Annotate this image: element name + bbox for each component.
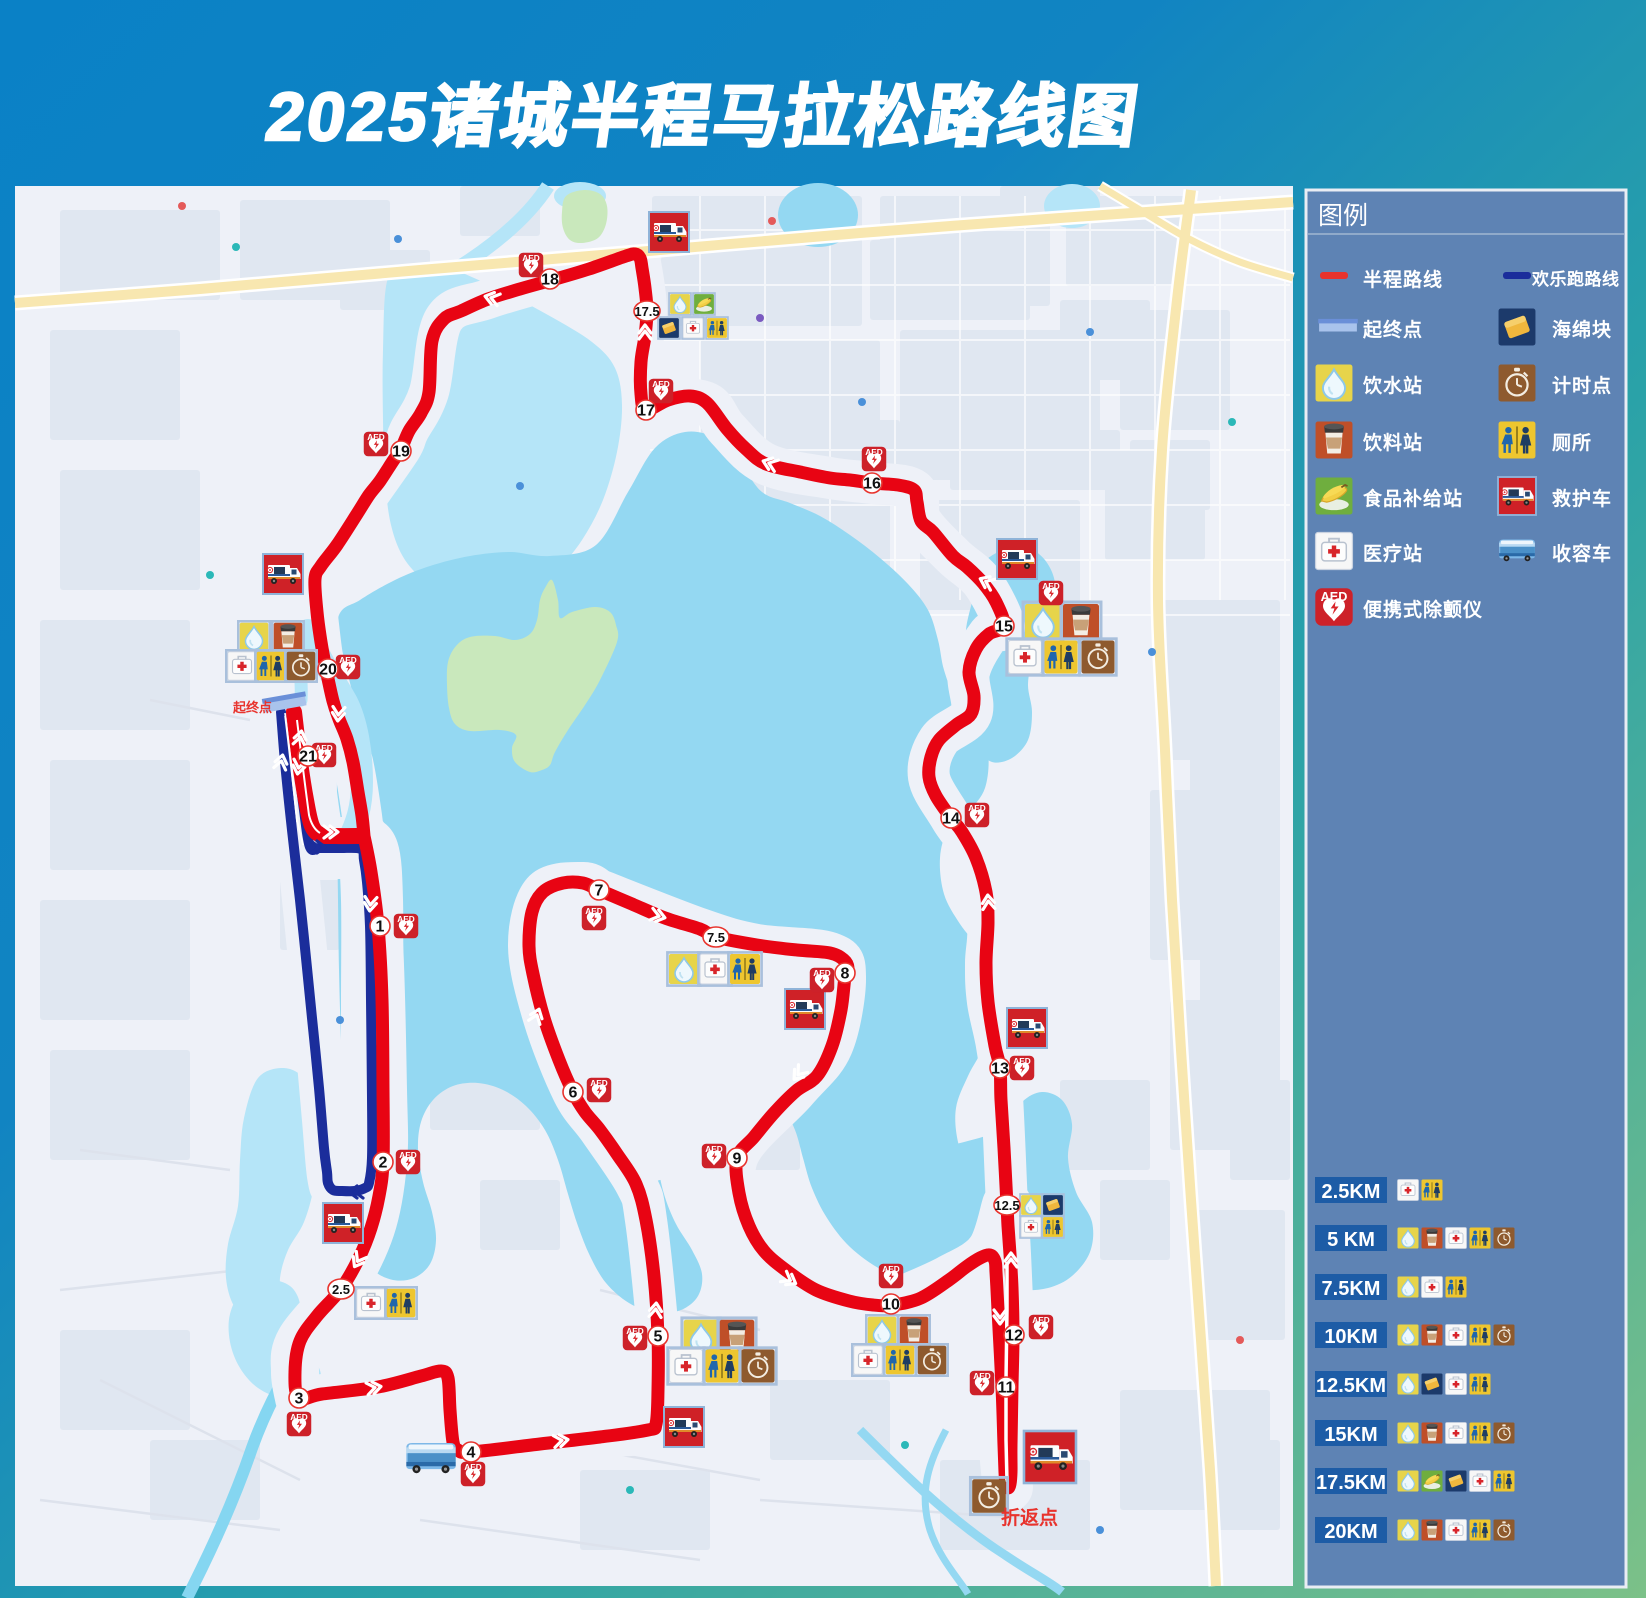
svg-text:计时点: 计时点 [1552, 375, 1612, 397]
svg-text:食品补给站: 食品补给站 [1363, 487, 1463, 510]
svg-text:21: 21 [299, 749, 317, 766]
svg-text:收容车: 收容车 [1552, 542, 1612, 565]
svg-text:18: 18 [541, 272, 559, 289]
svg-text:17.5: 17.5 [634, 304, 659, 319]
svg-text:20: 20 [319, 662, 337, 679]
svg-text:20KM: 20KM [1324, 1521, 1377, 1543]
svg-text:欢乐跑路线: 欢乐跑路线 [1531, 269, 1620, 289]
svg-text:13: 13 [991, 1061, 1009, 1078]
svg-text:5 KM: 5 KM [1327, 1229, 1375, 1251]
svg-text:饮料站: 饮料站 [1362, 431, 1423, 454]
svg-text:12.5: 12.5 [994, 1198, 1019, 1213]
svg-text:6: 6 [569, 1085, 578, 1102]
svg-text:4: 4 [467, 1445, 476, 1462]
svg-text:19: 19 [392, 444, 410, 461]
svg-text:起终点: 起终点 [232, 700, 272, 715]
svg-text:图例: 图例 [1318, 202, 1368, 230]
svg-text:17.5KM: 17.5KM [1316, 1472, 1386, 1494]
svg-text:2.5: 2.5 [332, 1282, 350, 1297]
svg-text:2.5KM: 2.5KM [1322, 1181, 1381, 1203]
svg-text:厕所: 厕所 [1552, 432, 1592, 454]
svg-text:便携式除颤仪: 便携式除颤仪 [1363, 598, 1483, 621]
svg-text:10KM: 10KM [1324, 1326, 1377, 1348]
svg-text:7: 7 [595, 883, 604, 900]
svg-text:8: 8 [841, 966, 850, 983]
svg-text:14: 14 [942, 811, 960, 828]
svg-text:12: 12 [1005, 1328, 1023, 1345]
svg-text:9: 9 [733, 1151, 742, 1168]
svg-text:11: 11 [998, 1380, 1015, 1397]
svg-text:半程路线: 半程路线 [1363, 268, 1443, 291]
svg-text:3: 3 [295, 1391, 304, 1408]
svg-text:救护车: 救护车 [1552, 487, 1612, 510]
svg-text:15KM: 15KM [1324, 1424, 1377, 1446]
svg-text:7.5: 7.5 [707, 930, 725, 945]
svg-text:折返点: 折返点 [1001, 1507, 1058, 1529]
svg-text:12.5KM: 12.5KM [1316, 1375, 1386, 1397]
svg-text:17: 17 [637, 403, 655, 420]
svg-text:16: 16 [863, 476, 881, 493]
svg-text:2: 2 [379, 1155, 388, 1172]
svg-text:海绵块: 海绵块 [1552, 318, 1612, 341]
svg-text:饮水站: 饮水站 [1362, 374, 1423, 397]
svg-text:15: 15 [995, 619, 1013, 636]
svg-text:2025诸城半程马拉松路线图: 2025诸城半程马拉松路线图 [261, 79, 1145, 155]
svg-text:1: 1 [376, 919, 385, 936]
svg-text:5: 5 [654, 1329, 663, 1346]
svg-text:10: 10 [882, 1297, 900, 1314]
svg-text:7.5KM: 7.5KM [1322, 1278, 1381, 1300]
svg-text:医疗站: 医疗站 [1363, 542, 1423, 565]
svg-text:起终点: 起终点 [1362, 318, 1423, 341]
